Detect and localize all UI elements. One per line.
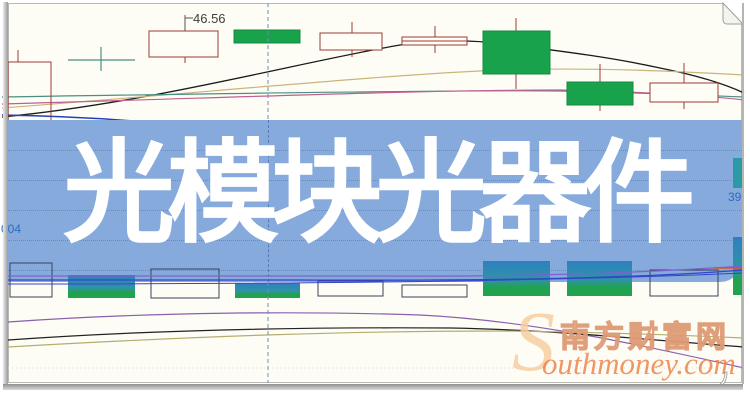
right-axis-value: 39: [728, 190, 741, 204]
frame-right: [742, 3, 744, 384]
frame-left: [3, 2, 8, 389]
promo-image: 光模块光器件 46.56 004 39 S 南方财富网 outhmoney.co…: [0, 0, 750, 400]
title-banner: 光模块光器件: [8, 120, 742, 282]
banner-title: 光模块光器件: [8, 138, 742, 250]
grid-dot-row: [8, 270, 742, 271]
price-annotation: 46.56: [193, 11, 226, 26]
frame-bottom: [3, 384, 743, 390]
